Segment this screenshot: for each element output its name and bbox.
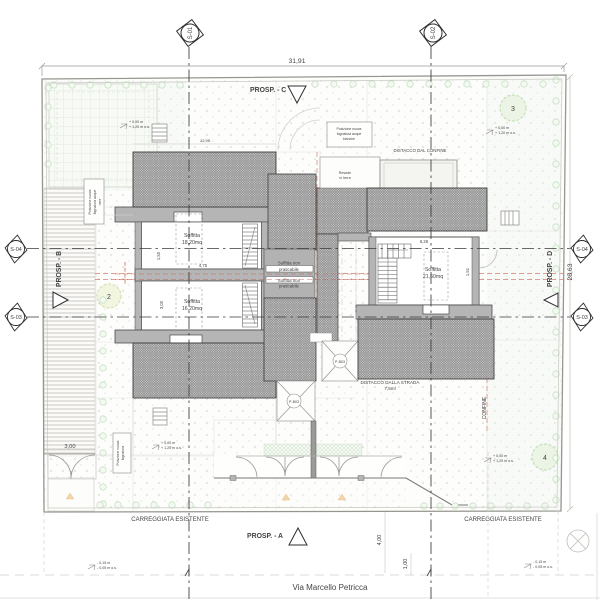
svg-text:Posizione nuova: Posizione nuova	[337, 127, 362, 131]
svg-text:P-B03: P-B03	[335, 360, 345, 364]
svg-text:S-03: S-03	[576, 315, 588, 321]
svg-text:S-02: S-02	[431, 26, 437, 39]
svg-text:Posizione nuova: Posizione nuova	[88, 189, 92, 214]
svg-text:Soffitta: Soffitta	[184, 233, 200, 239]
svg-text:+ 0,00 m: + 0,00 m	[495, 126, 509, 130]
svg-text:4: 4	[543, 455, 547, 462]
svg-text:S-01: S-01	[188, 26, 194, 39]
svg-text:+ 0,00 m: + 0,00 m	[161, 441, 175, 445]
svg-text:P-B03: P-B03	[289, 400, 299, 404]
svg-text:3,00: 3,00	[64, 444, 75, 450]
svg-text:+ 1,20 m o.s.: + 1,20 m o.s.	[161, 446, 182, 450]
svg-text:PROSP. - A: PROSP. - A	[247, 533, 283, 540]
svg-text:fognatura: fognatura	[121, 446, 125, 460]
svg-text:12,95: 12,95	[200, 138, 211, 143]
svg-text:4,00: 4,00	[377, 535, 383, 546]
svg-text:S-04: S-04	[10, 247, 22, 253]
svg-text:3: 3	[511, 106, 515, 113]
svg-text:7,5ml: 7,5ml	[384, 386, 395, 391]
svg-text:Soffitta: Soffitta	[184, 299, 200, 305]
svg-text:Resede: Resede	[339, 171, 351, 175]
svg-text:- 0,15 m: - 0,15 m	[97, 561, 110, 565]
svg-text:DISTACCO DAL CONFINE: DISTACCO DAL CONFINE	[394, 148, 447, 153]
svg-text:Soffitta non: Soffitta non	[278, 261, 301, 266]
svg-text:S-04: S-04	[576, 247, 588, 253]
svg-text:PROSP. - B: PROSP. - B	[56, 251, 63, 287]
svg-text:4,75: 4,75	[199, 263, 208, 268]
svg-text:18,20mq: 18,20mq	[182, 240, 202, 246]
svg-text:Via Marcello Petricca: Via Marcello Petricca	[293, 583, 369, 592]
svg-text:+ 1,20 m o.s.: + 1,20 m o.s.	[129, 125, 150, 129]
svg-text:Soffitta: Soffitta	[425, 267, 441, 273]
svg-text:16,20mq: 16,20mq	[182, 306, 202, 312]
svg-text:1,51: 1,51	[465, 267, 470, 276]
svg-text:praticabile: praticabile	[279, 267, 300, 272]
svg-text:CONFINE: CONFINE	[482, 396, 488, 419]
svg-text:DISTACCO DALLA STRADA: DISTACCO DALLA STRADA	[361, 380, 421, 385]
svg-text:+ 0,00 m: + 0,00 m	[129, 120, 143, 124]
svg-text:3,00: 3,00	[159, 300, 164, 309]
svg-text:praticabile: praticabile	[279, 284, 300, 289]
svg-text:- 0,05 m o.s.: - 0,05 m o.s.	[97, 566, 117, 570]
svg-text:6,26: 6,26	[420, 239, 429, 244]
svg-text:nere: nere	[98, 198, 102, 205]
svg-text:Soffitta non: Soffitta non	[278, 278, 301, 283]
svg-text:Posizione nuova: Posizione nuova	[116, 440, 120, 465]
svg-text:+ 1,20 m o.s.: + 1,20 m o.s.	[495, 131, 516, 135]
svg-text:21,60mq: 21,60mq	[423, 274, 443, 280]
svg-text:+ 0,00 m: + 0,00 m	[493, 454, 507, 458]
svg-text:CARREGGIATA ESISTENTE: CARREGGIATA ESISTENTE	[464, 517, 541, 523]
svg-text:fognatura acque: fognatura acque	[337, 132, 362, 136]
svg-text:- 0,15 m: - 0,15 m	[533, 560, 546, 564]
svg-text:1,00: 1,00	[403, 559, 409, 570]
svg-text:28,63: 28,63	[567, 263, 574, 280]
svg-text:PROSP. - C: PROSP. - C	[250, 87, 286, 94]
svg-text:bianche: bianche	[343, 137, 355, 141]
svg-text:+ 1,20 m o.s.: + 1,20 m o.s.	[493, 459, 514, 463]
svg-text:S-03: S-03	[10, 315, 22, 321]
svg-text:CARREGGIATA ESISTENTE: CARREGGIATA ESISTENTE	[131, 517, 208, 523]
svg-text:- 0,05 m o.s.: - 0,05 m o.s.	[533, 565, 553, 569]
svg-text:2: 2	[107, 294, 111, 301]
svg-text:fognatura acque: fognatura acque	[93, 190, 97, 215]
svg-text:in terra: in terra	[339, 176, 350, 180]
svg-text:1,50: 1,50	[156, 251, 161, 260]
svg-text:PROSP. - D: PROSP. - D	[547, 251, 554, 287]
svg-text:31,91: 31,91	[288, 58, 305, 65]
